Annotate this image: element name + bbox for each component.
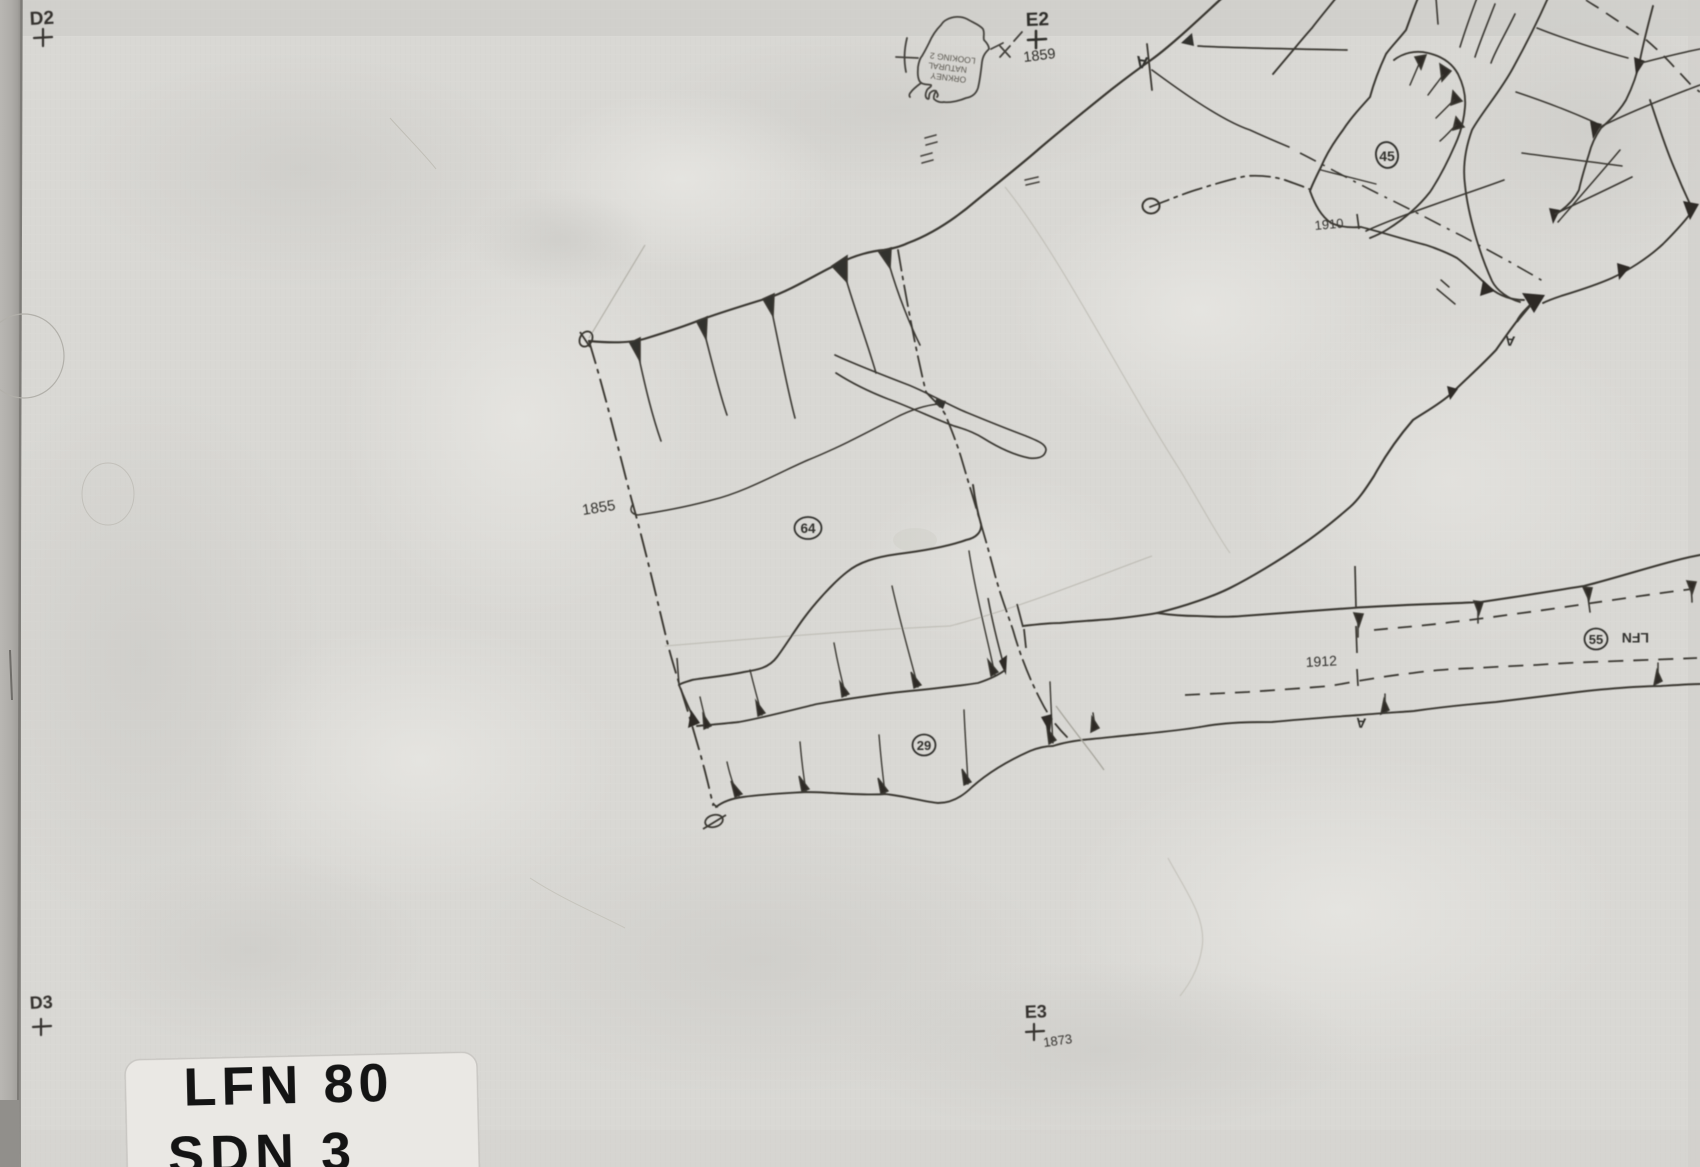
svg-text:SDN 3: SDN 3 — [167, 1122, 357, 1167]
svg-text:D2: D2 — [29, 8, 54, 30]
svg-text:E2: E2 — [1025, 9, 1049, 31]
svg-text:A: A — [1135, 52, 1150, 73]
svg-text:64: 64 — [800, 521, 816, 536]
svg-text:LFN: LFN — [1622, 630, 1649, 646]
svg-text:45: 45 — [1379, 148, 1395, 164]
svg-text:1910: 1910 — [1314, 216, 1344, 233]
svg-text:E3: E3 — [1024, 1001, 1047, 1022]
svg-text:1912: 1912 — [1305, 652, 1337, 670]
svg-text:LFN 80: LFN 80 — [183, 1053, 394, 1118]
svg-text:A: A — [1504, 333, 1515, 350]
svg-text:D3: D3 — [29, 992, 53, 1013]
svg-text:55: 55 — [1589, 632, 1603, 647]
svg-text:A: A — [1355, 715, 1366, 732]
svg-text:29: 29 — [917, 738, 931, 753]
